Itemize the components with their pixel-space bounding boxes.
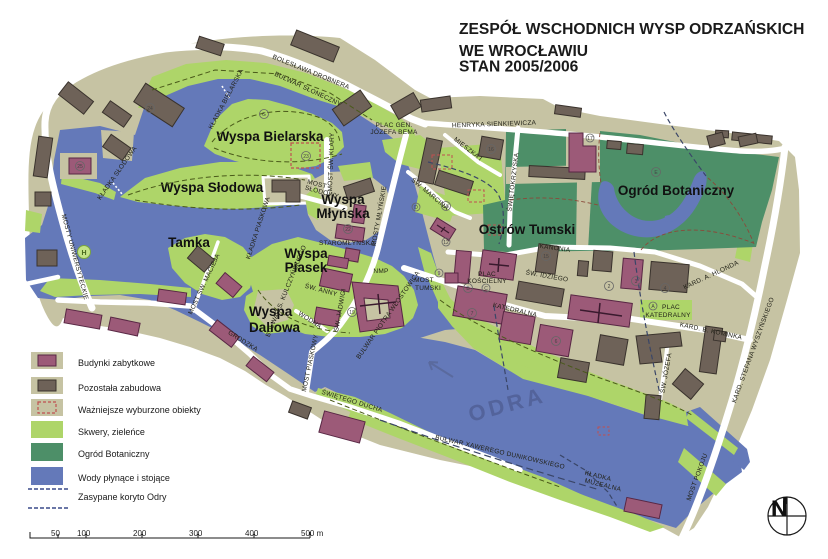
svg-text:KATEDRALNY: KATEDRALNY [645,312,691,319]
svg-text:9: 9 [438,271,441,277]
svg-text:TUMSKI: TUMSKI [415,285,441,292]
svg-text:STAROMŁYNSKA: STAROMŁYNSKA [319,240,375,247]
svg-text:G: G [262,112,266,118]
svg-text:3: 3 [635,279,638,285]
svg-text:Ostrów Tumski: Ostrów Tumski [479,222,576,237]
svg-text:25: 25 [77,164,83,170]
svg-text:KOŚCIELNY: KOŚCIELNY [467,276,507,285]
svg-text:Młyńska: Młyńska [316,206,370,221]
svg-text:PLAC: PLAC [662,304,680,311]
svg-text:Zasypane koryto Odry: Zasypane koryto Odry [78,492,167,502]
svg-text:16: 16 [488,147,494,153]
svg-text:4: 4 [664,286,667,292]
svg-text:PLAC: PLAC [478,271,496,278]
svg-text:Budynki zabytkowe: Budynki zabytkowe [78,358,155,368]
svg-text:15: 15 [543,254,549,260]
svg-text:6: 6 [555,339,558,345]
svg-text:19: 19 [349,310,355,316]
svg-text:12: 12 [443,240,449,246]
svg-text:WE WROCŁAWIU: WE WROCŁAWIU [459,43,588,60]
svg-text:500 m: 500 m [301,529,324,538]
svg-text:D: D [414,205,418,211]
svg-text:400: 400 [245,529,259,538]
svg-text:200: 200 [133,529,147,538]
svg-text:17: 17 [587,136,593,142]
svg-text:H: H [81,250,86,257]
svg-text:Ogród Botaniczny: Ogród Botaniczny [618,183,735,198]
svg-text:Ogród Botaniczny: Ogród Botaniczny [78,449,150,459]
svg-text:7: 7 [471,311,474,317]
svg-text:Wody płynące i stojące: Wody płynące i stojące [78,473,170,483]
svg-text:Pozostała zabudowa: Pozostała zabudowa [78,383,161,393]
svg-text:JÓZEFA BEMA: JÓZEFA BEMA [370,127,418,136]
svg-text:NMP: NMP [373,268,388,275]
svg-text:100: 100 [77,529,91,538]
svg-text:STAN 2005/2006: STAN 2005/2006 [459,59,579,76]
svg-text:Wyspa Bielarska: Wyspa Bielarska [216,129,324,144]
svg-text:50: 50 [51,529,60,538]
svg-text:23: 23 [303,154,309,160]
svg-text:Skwery, zieleńce: Skwery, zieleńce [78,427,145,437]
svg-text:ZESPÓŁ WSCHODNICH WYSP ODRZAŃS: ZESPÓŁ WSCHODNICH WYSP ODRZAŃSKICH [459,19,804,38]
svg-text:PLAC GEN.: PLAC GEN. [376,122,413,129]
svg-text:Tamka: Tamka [168,235,210,250]
svg-text:24: 24 [147,106,153,112]
svg-text:2: 2 [608,284,611,290]
svg-text:13: 13 [443,204,449,210]
svg-text:Wyspa: Wyspa [249,304,293,319]
svg-text:300: 300 [189,529,203,538]
svg-text:Ważniejsze wyburzone obiekty: Ważniejsze wyburzone obiekty [78,405,201,415]
svg-text:C: C [484,286,488,292]
svg-text:22: 22 [345,227,351,233]
